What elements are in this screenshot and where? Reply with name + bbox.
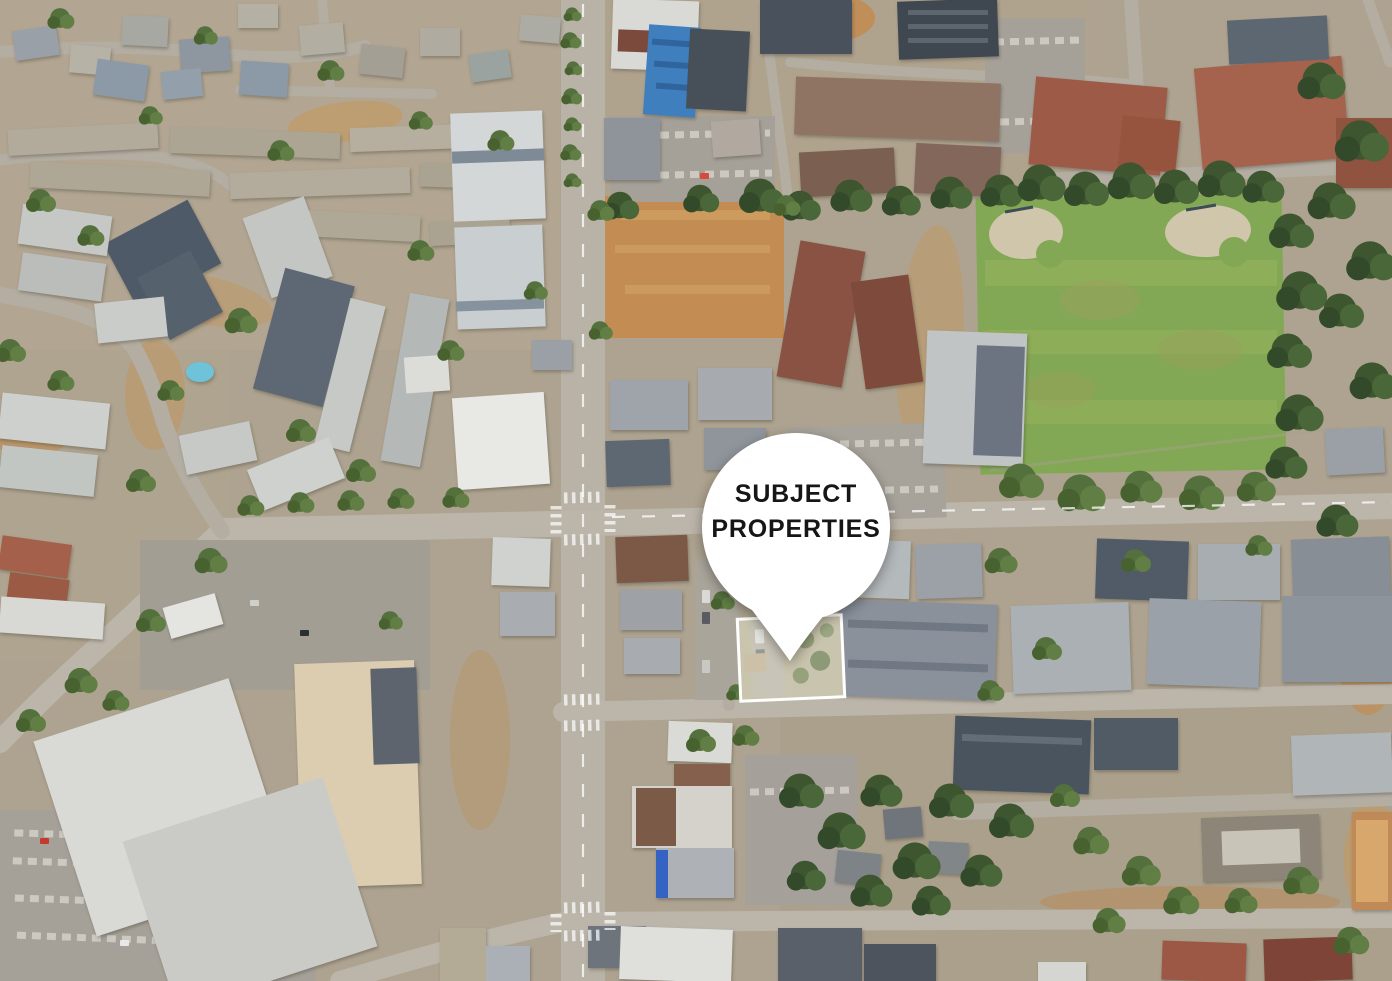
aerial-map: SUBJECT PROPERTIES	[0, 0, 1392, 981]
marker-label-line2: PROPERTIES	[711, 515, 880, 543]
swimming-pool	[186, 362, 214, 382]
aerial-map-screenshot: SUBJECT PROPERTIES	[0, 0, 1392, 981]
cross-road-bottom	[563, 918, 1392, 922]
marker-label-line1: SUBJECT	[735, 480, 857, 508]
